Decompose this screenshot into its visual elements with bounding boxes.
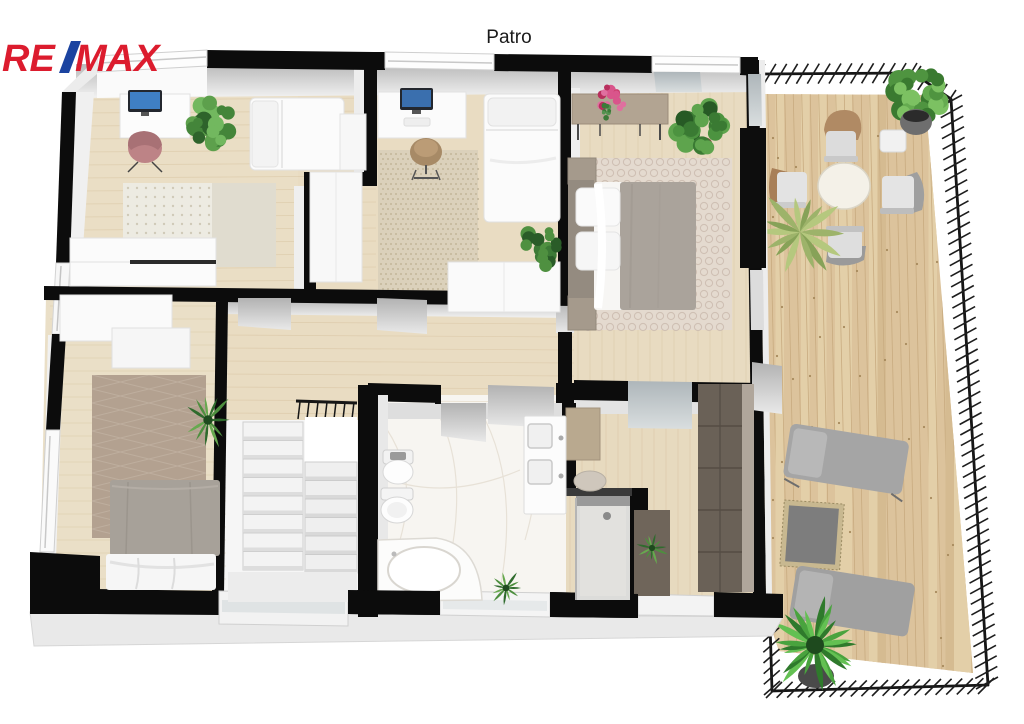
- svg-text:RE: RE: [2, 38, 56, 80]
- svg-text:Patro: Patro: [486, 27, 531, 48]
- svg-text:MAX: MAX: [75, 38, 162, 80]
